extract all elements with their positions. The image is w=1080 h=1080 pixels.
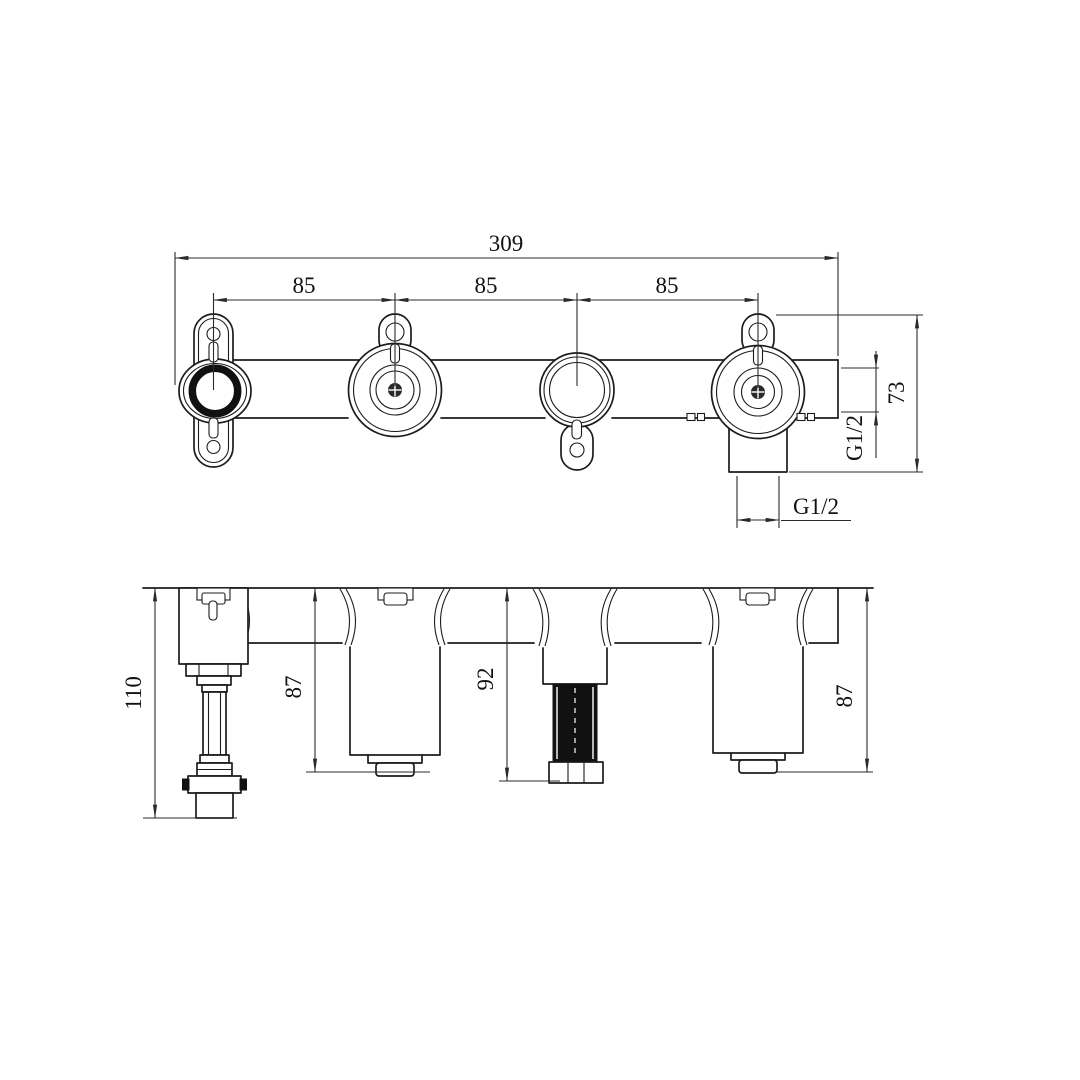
dim-label-total: 309 (489, 231, 524, 256)
dim-label-depth-overall: 110 (121, 676, 146, 710)
mounting-nut (549, 762, 603, 783)
dim-port-spacing: 85 85 85 (214, 273, 759, 390)
screw-hole-bottom (207, 441, 220, 454)
dim-label-side-port: G1/2 (842, 415, 867, 461)
side-view: 110 87 92 87 (121, 588, 873, 818)
dim-label-depth-right: 87 (832, 685, 857, 708)
cartridge-left (350, 588, 440, 776)
dim-label-spacing-1: 85 (293, 273, 316, 298)
cartridge-right (713, 588, 803, 773)
dim-label-depth-left: 87 (281, 676, 306, 699)
dim-label-depth-center: 92 (473, 668, 498, 691)
threaded-stud (543, 648, 607, 783)
ear-hole (570, 443, 584, 457)
dim-label-spacing-2: 85 (475, 273, 498, 298)
dim-bottom-port: G1/2 (737, 476, 851, 528)
dim-label-bottom-port: G1/2 (793, 494, 839, 519)
dim-label-spacing-3: 85 (656, 273, 679, 298)
front-view: 309 85 85 85 73 G (175, 231, 923, 528)
dim-depth-right-cartridge: 87 (777, 588, 873, 772)
mounting-bracket (179, 314, 251, 467)
dim-side-port: G1/2 (841, 351, 879, 461)
dim-label-height: 73 (884, 382, 909, 405)
technical-drawing-page: 309 85 85 85 73 G (0, 0, 1080, 1080)
faucet-rough-in-drawing: 309 85 85 85 73 G (0, 0, 1080, 1080)
spout-shank (179, 588, 248, 818)
